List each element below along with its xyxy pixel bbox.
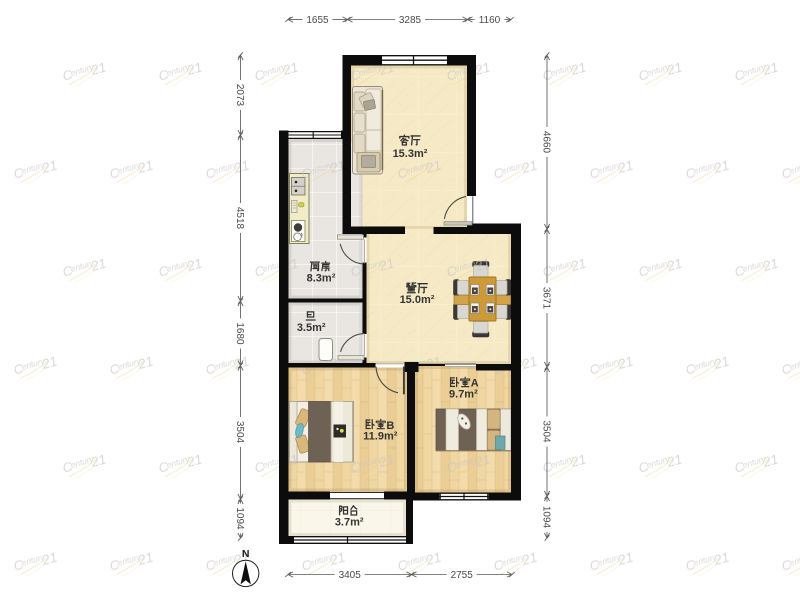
svg-text:3405: 3405 bbox=[339, 570, 362, 581]
svg-text:4660: 4660 bbox=[540, 131, 551, 154]
svg-text:8.3m²: 8.3m² bbox=[307, 273, 336, 285]
svg-text:3285: 3285 bbox=[399, 15, 422, 26]
svg-text:4518: 4518 bbox=[234, 207, 245, 230]
svg-text:3504: 3504 bbox=[540, 420, 551, 443]
svg-text:3504: 3504 bbox=[234, 421, 245, 444]
svg-text:3671: 3671 bbox=[540, 287, 551, 310]
svg-text:1160: 1160 bbox=[479, 15, 501, 26]
svg-text:2073: 2073 bbox=[234, 84, 245, 107]
svg-text:9.7m²: 9.7m² bbox=[449, 389, 478, 401]
svg-text:1680: 1680 bbox=[234, 322, 245, 345]
svg-text:N: N bbox=[242, 548, 250, 560]
svg-text:1094: 1094 bbox=[234, 507, 245, 530]
svg-text:11.9m²: 11.9m² bbox=[363, 431, 398, 443]
svg-text:1094: 1094 bbox=[540, 506, 551, 529]
svg-text:15.3m²: 15.3m² bbox=[393, 148, 428, 160]
svg-text:3.5m²: 3.5m² bbox=[297, 322, 326, 334]
svg-text:15.0m²: 15.0m² bbox=[400, 294, 435, 306]
svg-text:3.7m²: 3.7m² bbox=[335, 517, 364, 529]
svg-text:1655: 1655 bbox=[306, 15, 329, 26]
svg-text:2755: 2755 bbox=[451, 570, 474, 581]
